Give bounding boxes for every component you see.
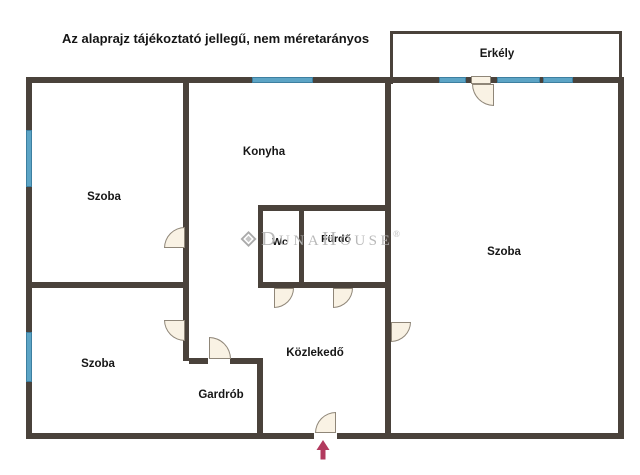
door-room-bottom-left-swing	[164, 320, 185, 341]
label-wardrobe: Gardrób	[198, 389, 243, 401]
label-room-right: Szoba	[487, 246, 521, 258]
watermark-registered-mark: ®	[393, 229, 400, 239]
window-balcony-3	[543, 77, 573, 83]
wall-bottom-left-segment	[26, 433, 314, 439]
disclaimer-title: Az alaprajz tájékoztató jellegű, nem mér…	[62, 31, 369, 46]
wall-wardrobe-right	[257, 364, 263, 433]
door-wc-swing	[274, 288, 294, 308]
wall-wardrobe-top-left-segment	[189, 358, 208, 364]
entrance-opening	[314, 433, 337, 439]
window-balcony-1	[439, 77, 466, 83]
window-room-bottom-left	[26, 332, 32, 382]
wall-right-room-divider-vertical	[385, 83, 391, 433]
watermark-letter-d: D	[261, 228, 279, 250]
wall-right	[618, 77, 624, 439]
door-room-top-left-swing	[164, 227, 185, 248]
door-bathroom-swing	[333, 288, 353, 308]
label-kitchen: Konyha	[243, 146, 285, 158]
balcony-door-jamb-right	[491, 77, 496, 83]
window-room-top-left	[26, 130, 32, 187]
wall-left-rooms-divider-horizontal	[32, 282, 183, 288]
balcony-door-leaf	[471, 76, 491, 84]
door-entrance-swing	[315, 412, 336, 433]
entrance-arrow-icon	[316, 440, 330, 460]
wall-bathroom-top	[258, 205, 388, 211]
watermark-letters-una: UNA	[279, 233, 322, 249]
watermark-duna-house: DUNAHOUSE®	[240, 222, 400, 256]
watermark-text: DUNAHOUSE®	[261, 229, 400, 249]
watermark-letters-ouse: OUSE	[340, 233, 393, 249]
door-wardrobe-swing	[209, 337, 231, 359]
label-balcony: Erkély	[480, 48, 515, 60]
wall-bottom-right-segment	[337, 433, 624, 439]
window-balcony-2	[497, 77, 540, 83]
floor-plan: Az alaprajz tájékoztató jellegű, nem mér…	[0, 0, 640, 475]
watermark-letter-h: H	[322, 228, 340, 250]
label-room-bottom-left: Szoba	[81, 358, 115, 370]
window-kitchen	[252, 77, 313, 83]
duna-house-diamond-logo-icon	[240, 223, 257, 255]
door-room-right-swing	[391, 322, 411, 342]
label-room-top-left: Szoba	[87, 191, 121, 203]
label-hallway: Közlekedő	[286, 347, 344, 359]
door-balcony-swing	[472, 84, 494, 106]
